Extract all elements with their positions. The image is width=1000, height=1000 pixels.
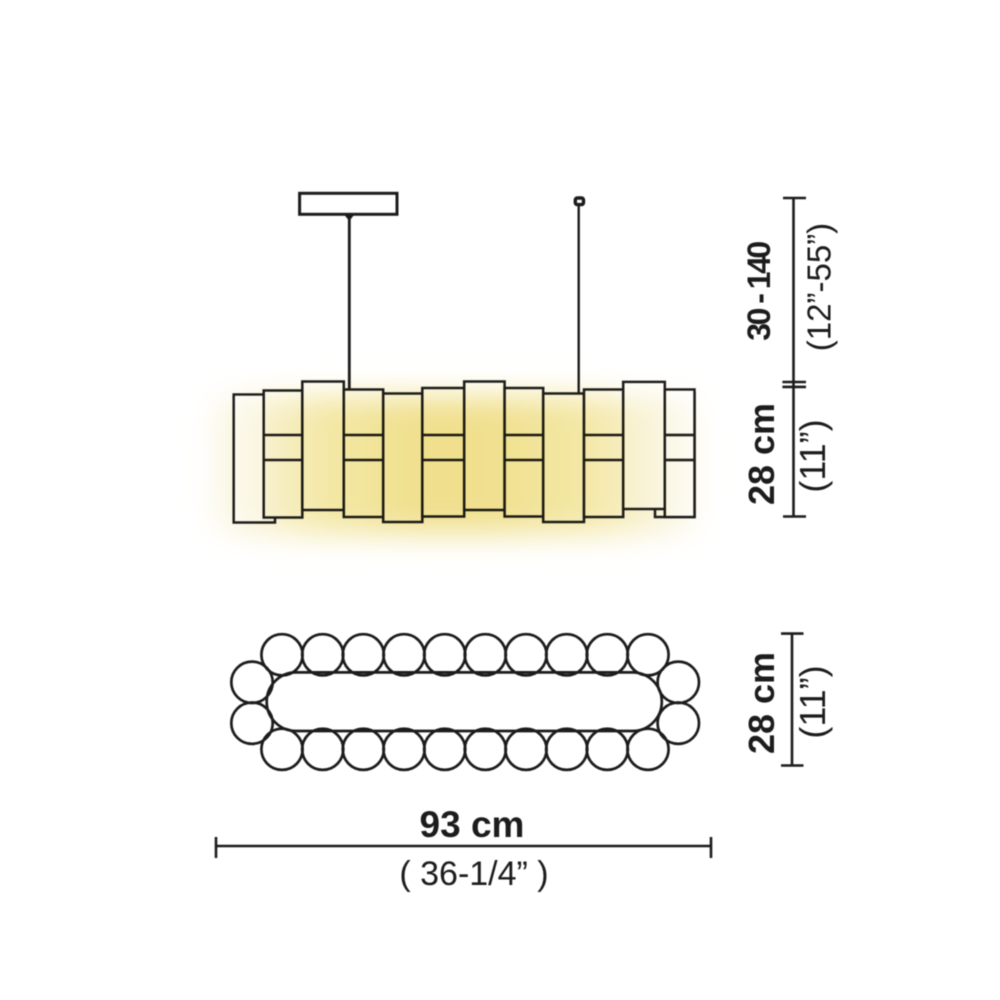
- svg-text:(11”): (11”): [792, 419, 833, 492]
- svg-text:( 36-1/4” ): ( 36-1/4” ): [399, 855, 548, 893]
- svg-text:30 - 140: 30 - 140: [741, 242, 777, 341]
- svg-text:93 cm: 93 cm: [420, 804, 525, 845]
- svg-text:(12”-55”): (12”-55”): [801, 223, 838, 351]
- svg-text:28 cm: 28 cm: [741, 652, 782, 754]
- svg-text:28 cm: 28 cm: [741, 403, 782, 505]
- svg-text:(11”): (11”): [792, 665, 833, 738]
